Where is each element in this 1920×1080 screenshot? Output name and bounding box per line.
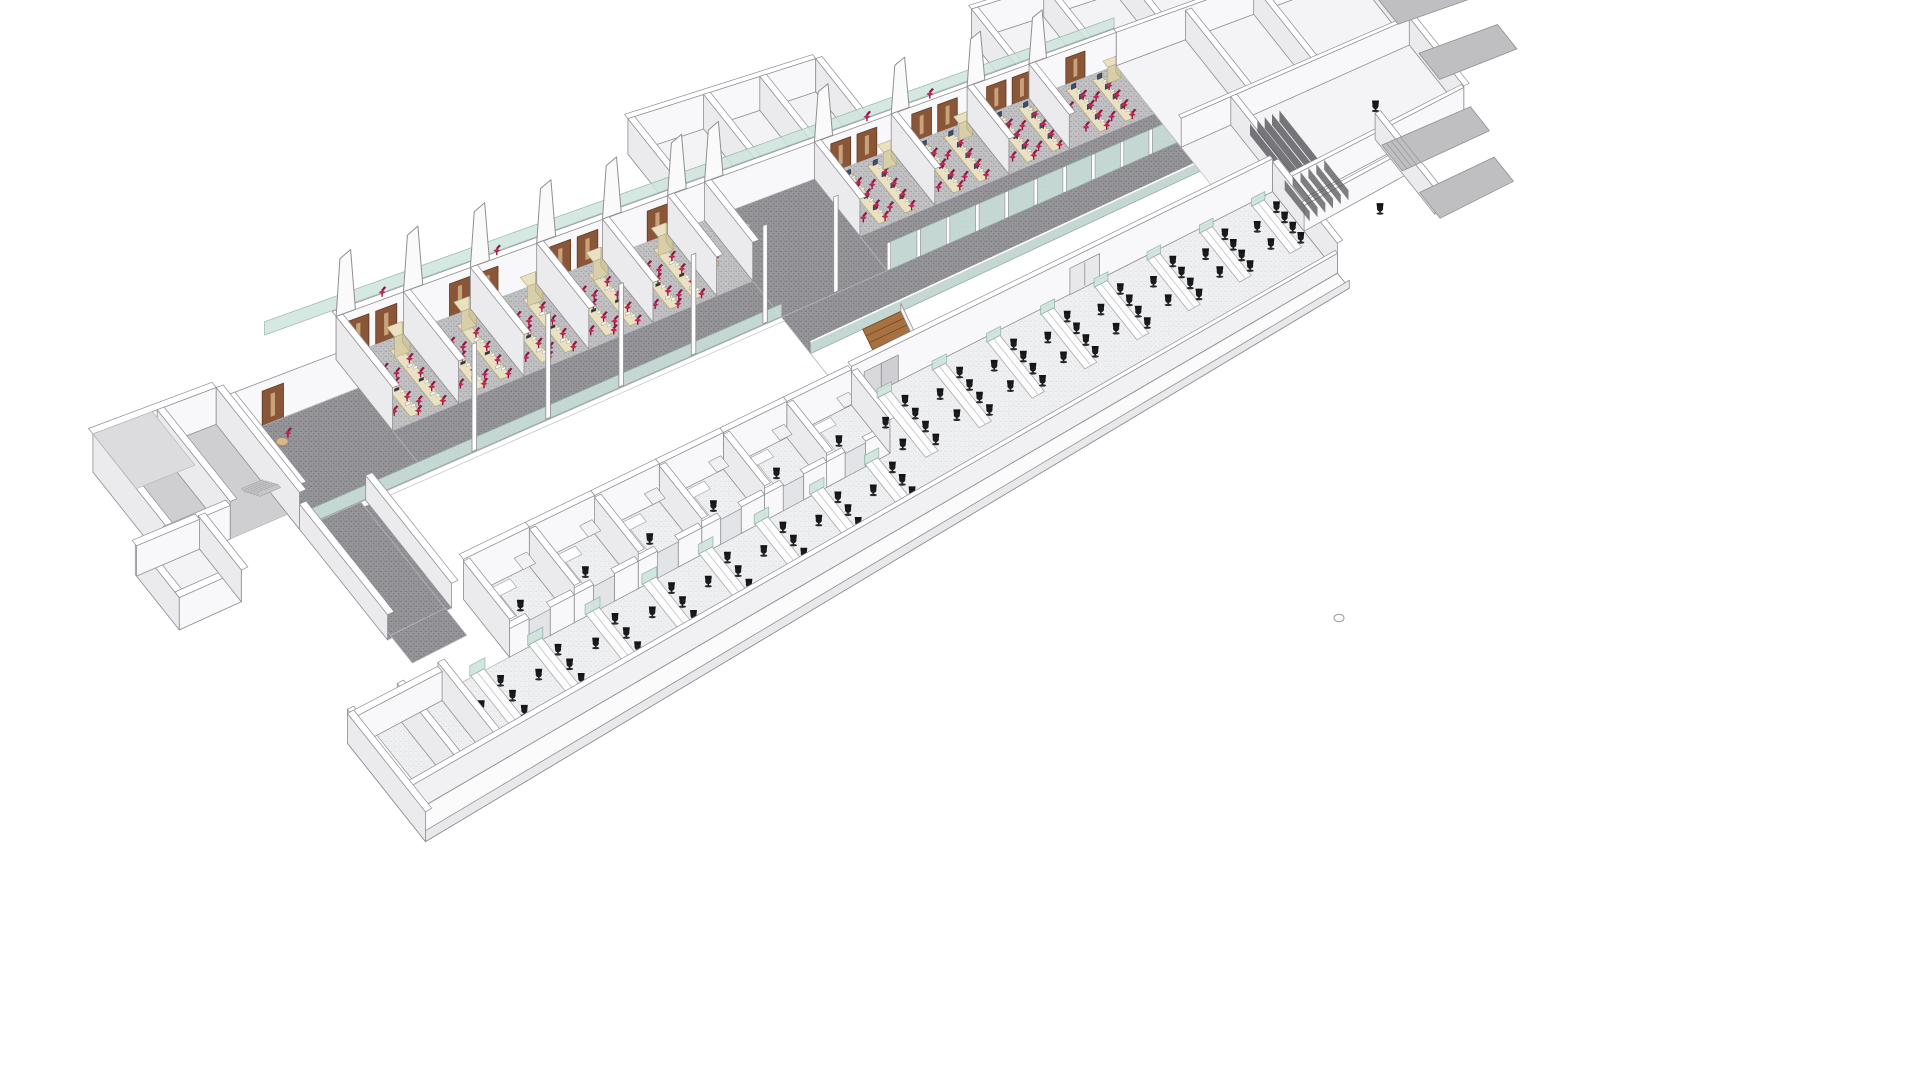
stray-orbit-circle <box>1334 614 1344 622</box>
layer-misc <box>1334 614 1344 622</box>
model-viewport[interactable] <box>0 0 1920 1080</box>
axonometric-building-render <box>0 0 1920 1080</box>
